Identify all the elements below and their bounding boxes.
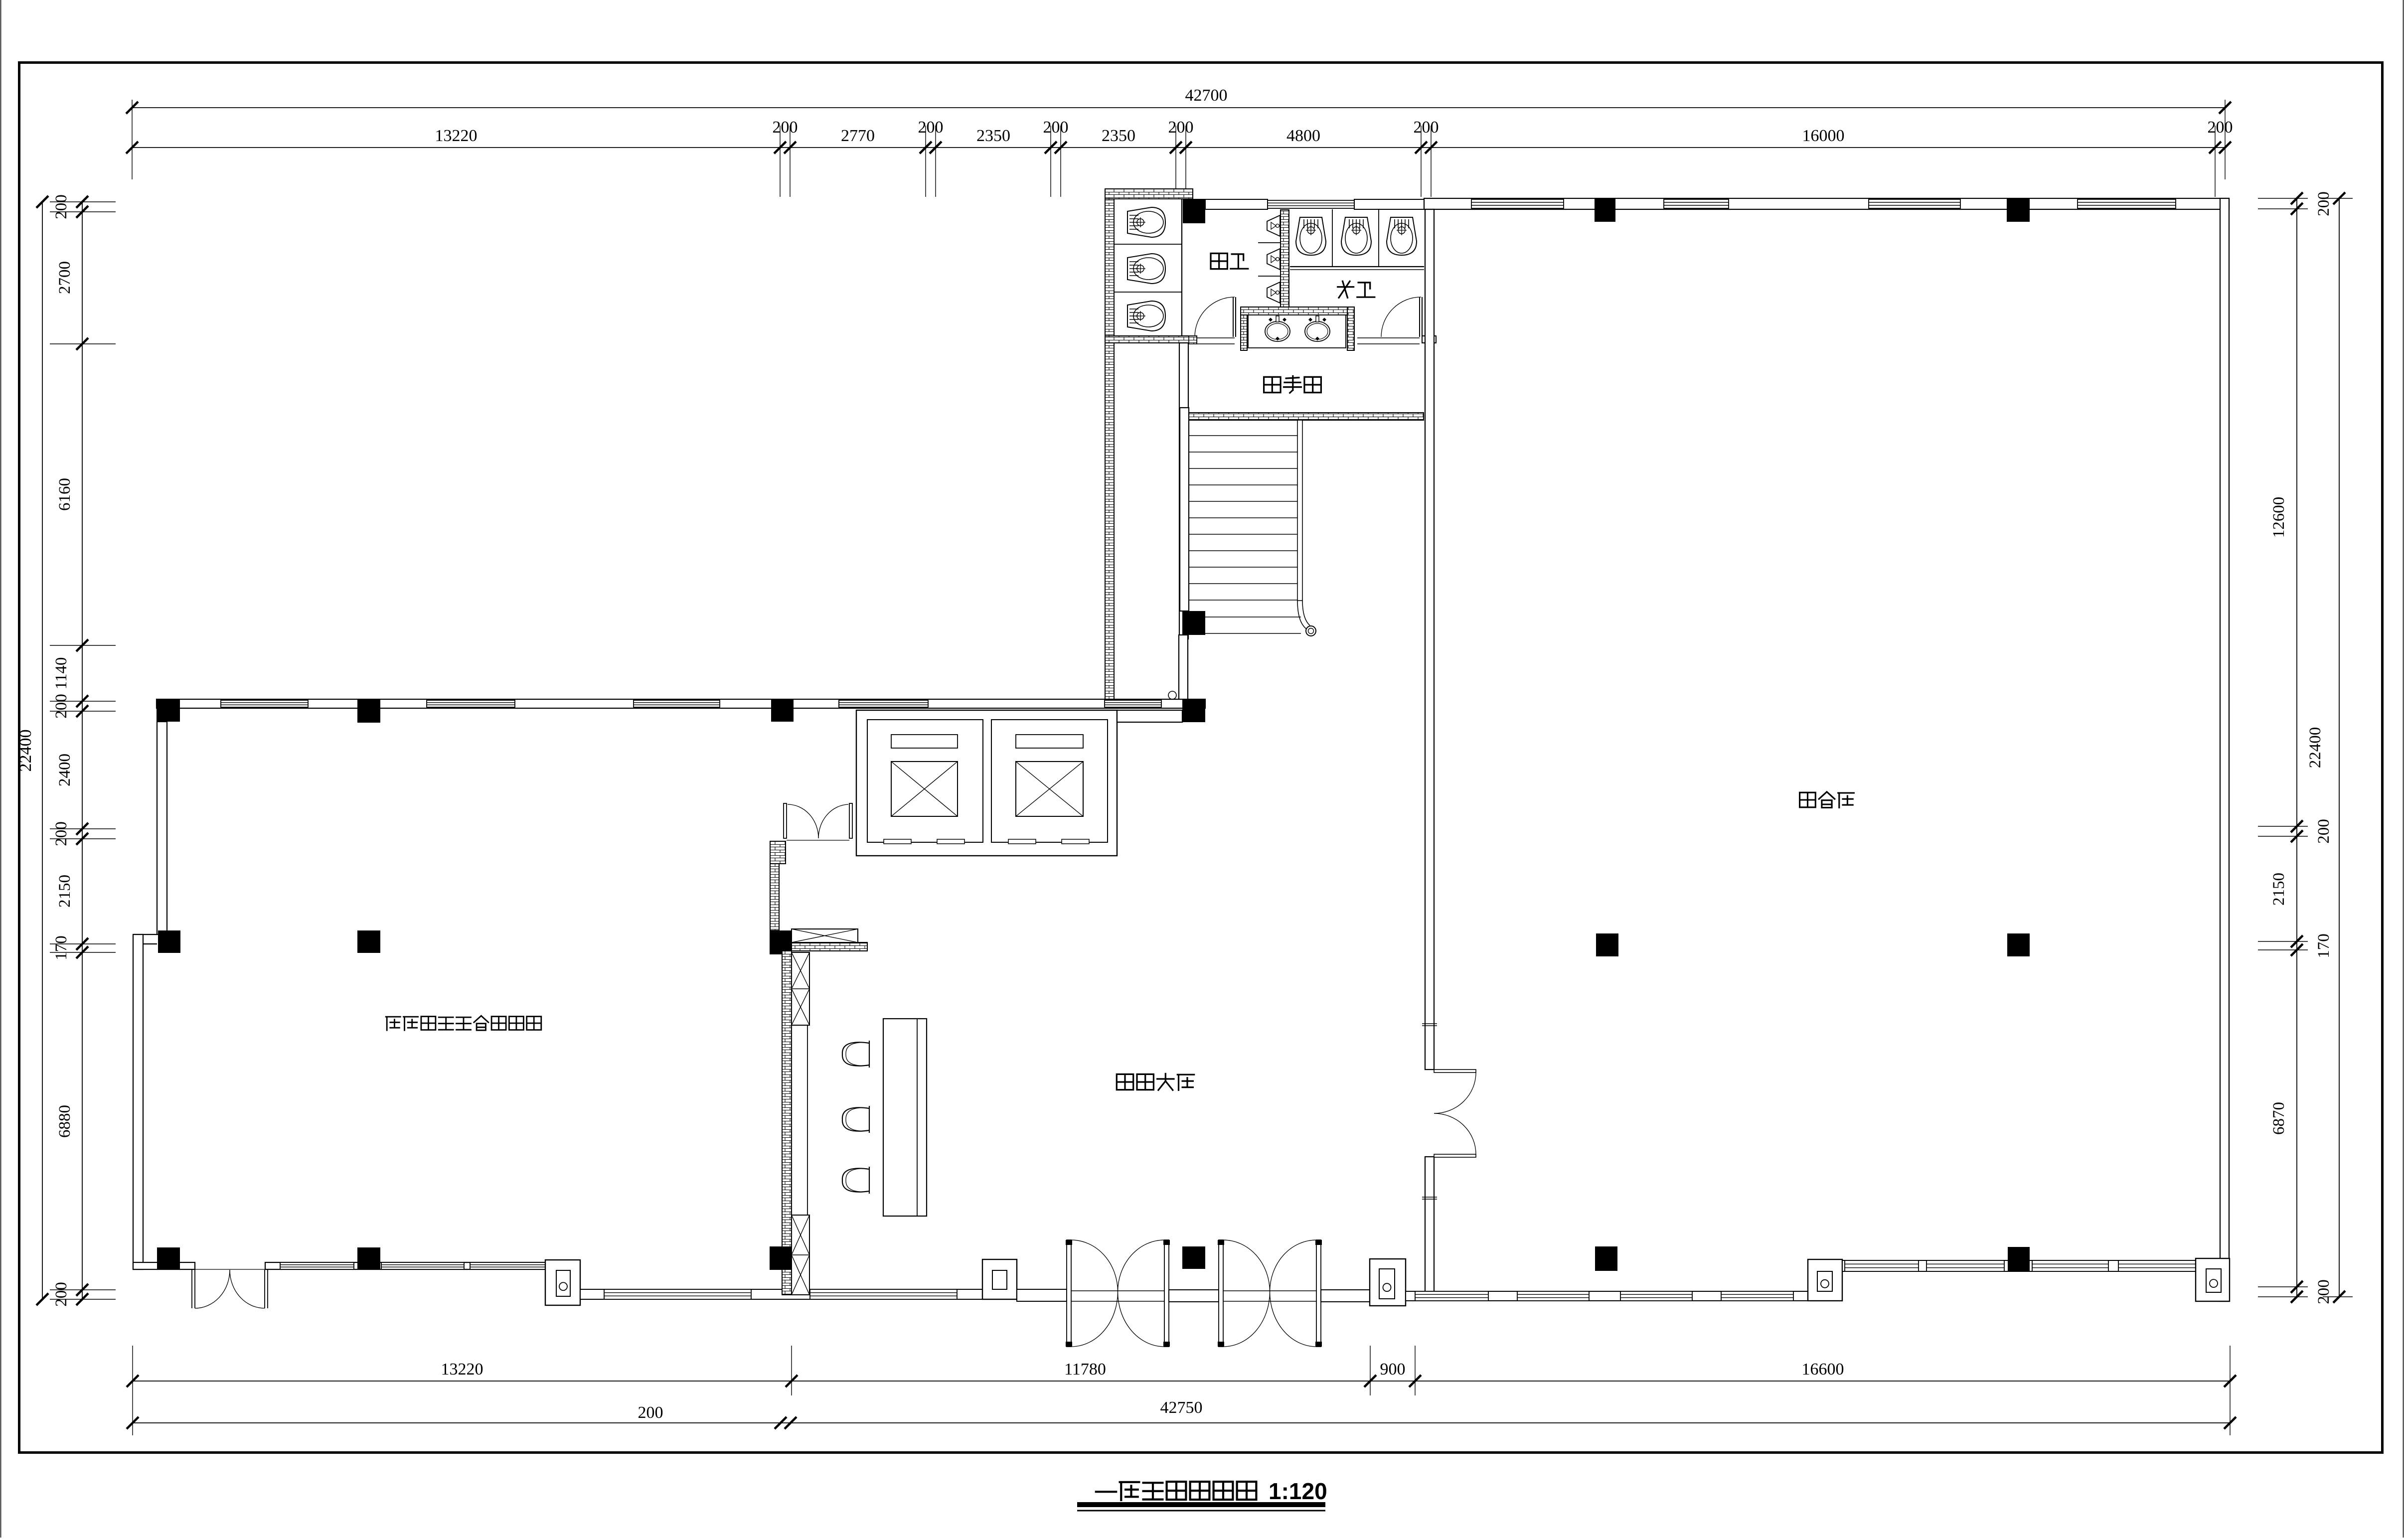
svg-text:42750: 42750 [1160, 1398, 1203, 1417]
svg-text:200: 200 [1043, 118, 1069, 137]
svg-text:1140: 1140 [52, 657, 70, 690]
svg-text:170: 170 [2315, 933, 2333, 958]
svg-text:4800: 4800 [1286, 127, 1320, 145]
svg-text:200: 200 [1414, 118, 1439, 137]
svg-text:200: 200 [52, 1282, 70, 1307]
svg-text:200: 200 [1168, 118, 1194, 137]
svg-text:170: 170 [52, 935, 70, 960]
svg-text:2350: 2350 [976, 127, 1010, 145]
svg-text:2150: 2150 [56, 875, 74, 908]
svg-text:2350: 2350 [1102, 127, 1135, 145]
svg-text:2400: 2400 [56, 754, 74, 786]
svg-text:200: 200 [918, 118, 944, 137]
svg-text:16600: 16600 [1802, 1360, 1844, 1379]
svg-text:6880: 6880 [56, 1105, 74, 1138]
svg-text:200: 200 [52, 194, 70, 219]
svg-text:200: 200 [52, 694, 70, 719]
svg-text:11780: 11780 [1064, 1360, 1106, 1379]
svg-text:200: 200 [2315, 819, 2333, 844]
svg-text:200: 200 [638, 1403, 663, 1422]
svg-text:2150: 2150 [2270, 873, 2288, 906]
svg-text:2700: 2700 [56, 261, 74, 294]
svg-text:200: 200 [52, 821, 70, 846]
svg-text:900: 900 [1380, 1360, 1406, 1379]
svg-text:42700: 42700 [1185, 86, 1228, 105]
svg-text:16000: 16000 [1802, 127, 1845, 145]
svg-text:2770: 2770 [841, 127, 875, 145]
svg-text:22400: 22400 [2306, 727, 2324, 769]
svg-text:22400: 22400 [16, 730, 35, 772]
svg-text:200: 200 [2208, 118, 2233, 137]
svg-text:1:120: 1:120 [1269, 1478, 1327, 1504]
svg-text:200: 200 [2315, 191, 2333, 216]
svg-text:13220: 13220 [441, 1360, 483, 1379]
svg-text:6870: 6870 [2270, 1102, 2288, 1135]
svg-text:12600: 12600 [2270, 497, 2288, 538]
svg-text:6160: 6160 [56, 478, 74, 511]
svg-text:200: 200 [2315, 1279, 2333, 1304]
svg-text:13220: 13220 [435, 127, 478, 145]
svg-text:200: 200 [773, 118, 798, 137]
